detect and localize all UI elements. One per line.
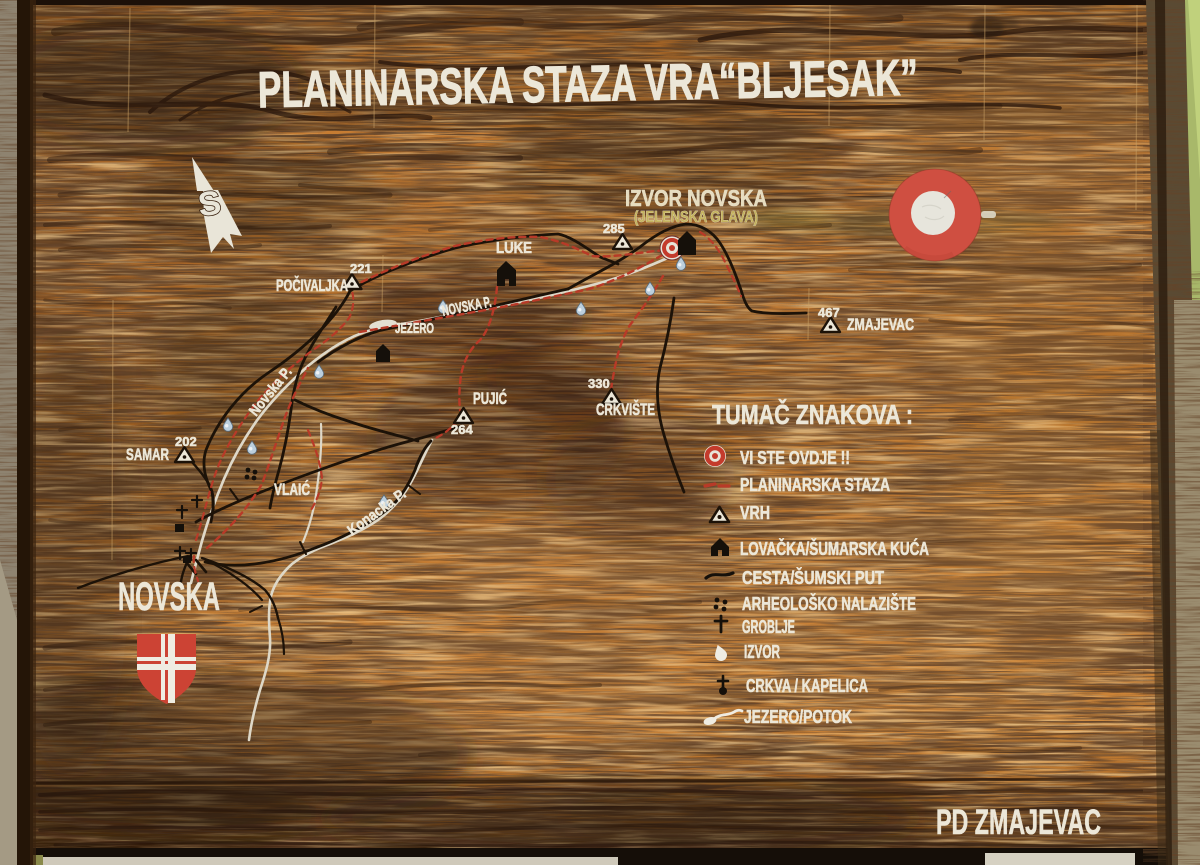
svg-text:SAMAR: SAMAR xyxy=(126,445,169,464)
svg-text:PD ZMAJEVAC: PD ZMAJEVAC xyxy=(936,803,1101,842)
svg-text:LUKE: LUKE xyxy=(496,240,532,257)
svg-text:IZVOR NOVSKA: IZVOR NOVSKA xyxy=(625,185,767,211)
svg-text:221: 221 xyxy=(350,261,372,276)
svg-text:VI STE OVDJE !!: VI STE OVDJE !! xyxy=(740,448,850,468)
svg-text:ARHEOLOŠKO NALAZIŠTE: ARHEOLOŠKO NALAZIŠTE xyxy=(742,593,916,614)
svg-text:CRKVA / KAPELICA: CRKVA / KAPELICA xyxy=(746,676,868,696)
svg-text:CESTA/ŠUMSKI PUT: CESTA/ŠUMSKI PUT xyxy=(742,567,884,588)
svg-text:(JELENSKA GLAVA): (JELENSKA GLAVA) xyxy=(634,209,758,226)
svg-text:JEZERO: JEZERO xyxy=(395,320,434,337)
svg-text:PLANINARSKA STAZA: PLANINARSKA STAZA xyxy=(740,475,890,495)
svg-text:JEZERO/POTOK: JEZERO/POTOK xyxy=(744,707,852,727)
svg-text:VRH: VRH xyxy=(740,503,770,523)
svg-text:TUMAČ ZNAKOVA :: TUMAČ ZNAKOVA : xyxy=(712,398,913,430)
svg-text:VLAIĆ: VLAIĆ xyxy=(274,480,310,499)
svg-text:467: 467 xyxy=(818,305,840,320)
svg-text:285: 285 xyxy=(603,221,625,236)
svg-text:LOVAČKA/ŠUMARSKA KUĆA: LOVAČKA/ŠUMARSKA KUĆA xyxy=(740,538,929,559)
svg-text:POČIVALJKA: POČIVALJKA xyxy=(276,276,348,295)
svg-text:PUJIĆ: PUJIĆ xyxy=(473,389,507,408)
svg-text:NOVSKA: NOVSKA xyxy=(118,575,220,619)
svg-text:202: 202 xyxy=(175,434,197,449)
svg-text:ZMAJEVAC: ZMAJEVAC xyxy=(847,315,914,334)
svg-text:CRKVIŠTE: CRKVIŠTE xyxy=(596,400,655,419)
svg-text:GROBLJE: GROBLJE xyxy=(742,617,795,637)
svg-text:264: 264 xyxy=(451,422,473,437)
svg-text:330: 330 xyxy=(588,376,610,391)
svg-text:IZVOR: IZVOR xyxy=(744,642,780,662)
